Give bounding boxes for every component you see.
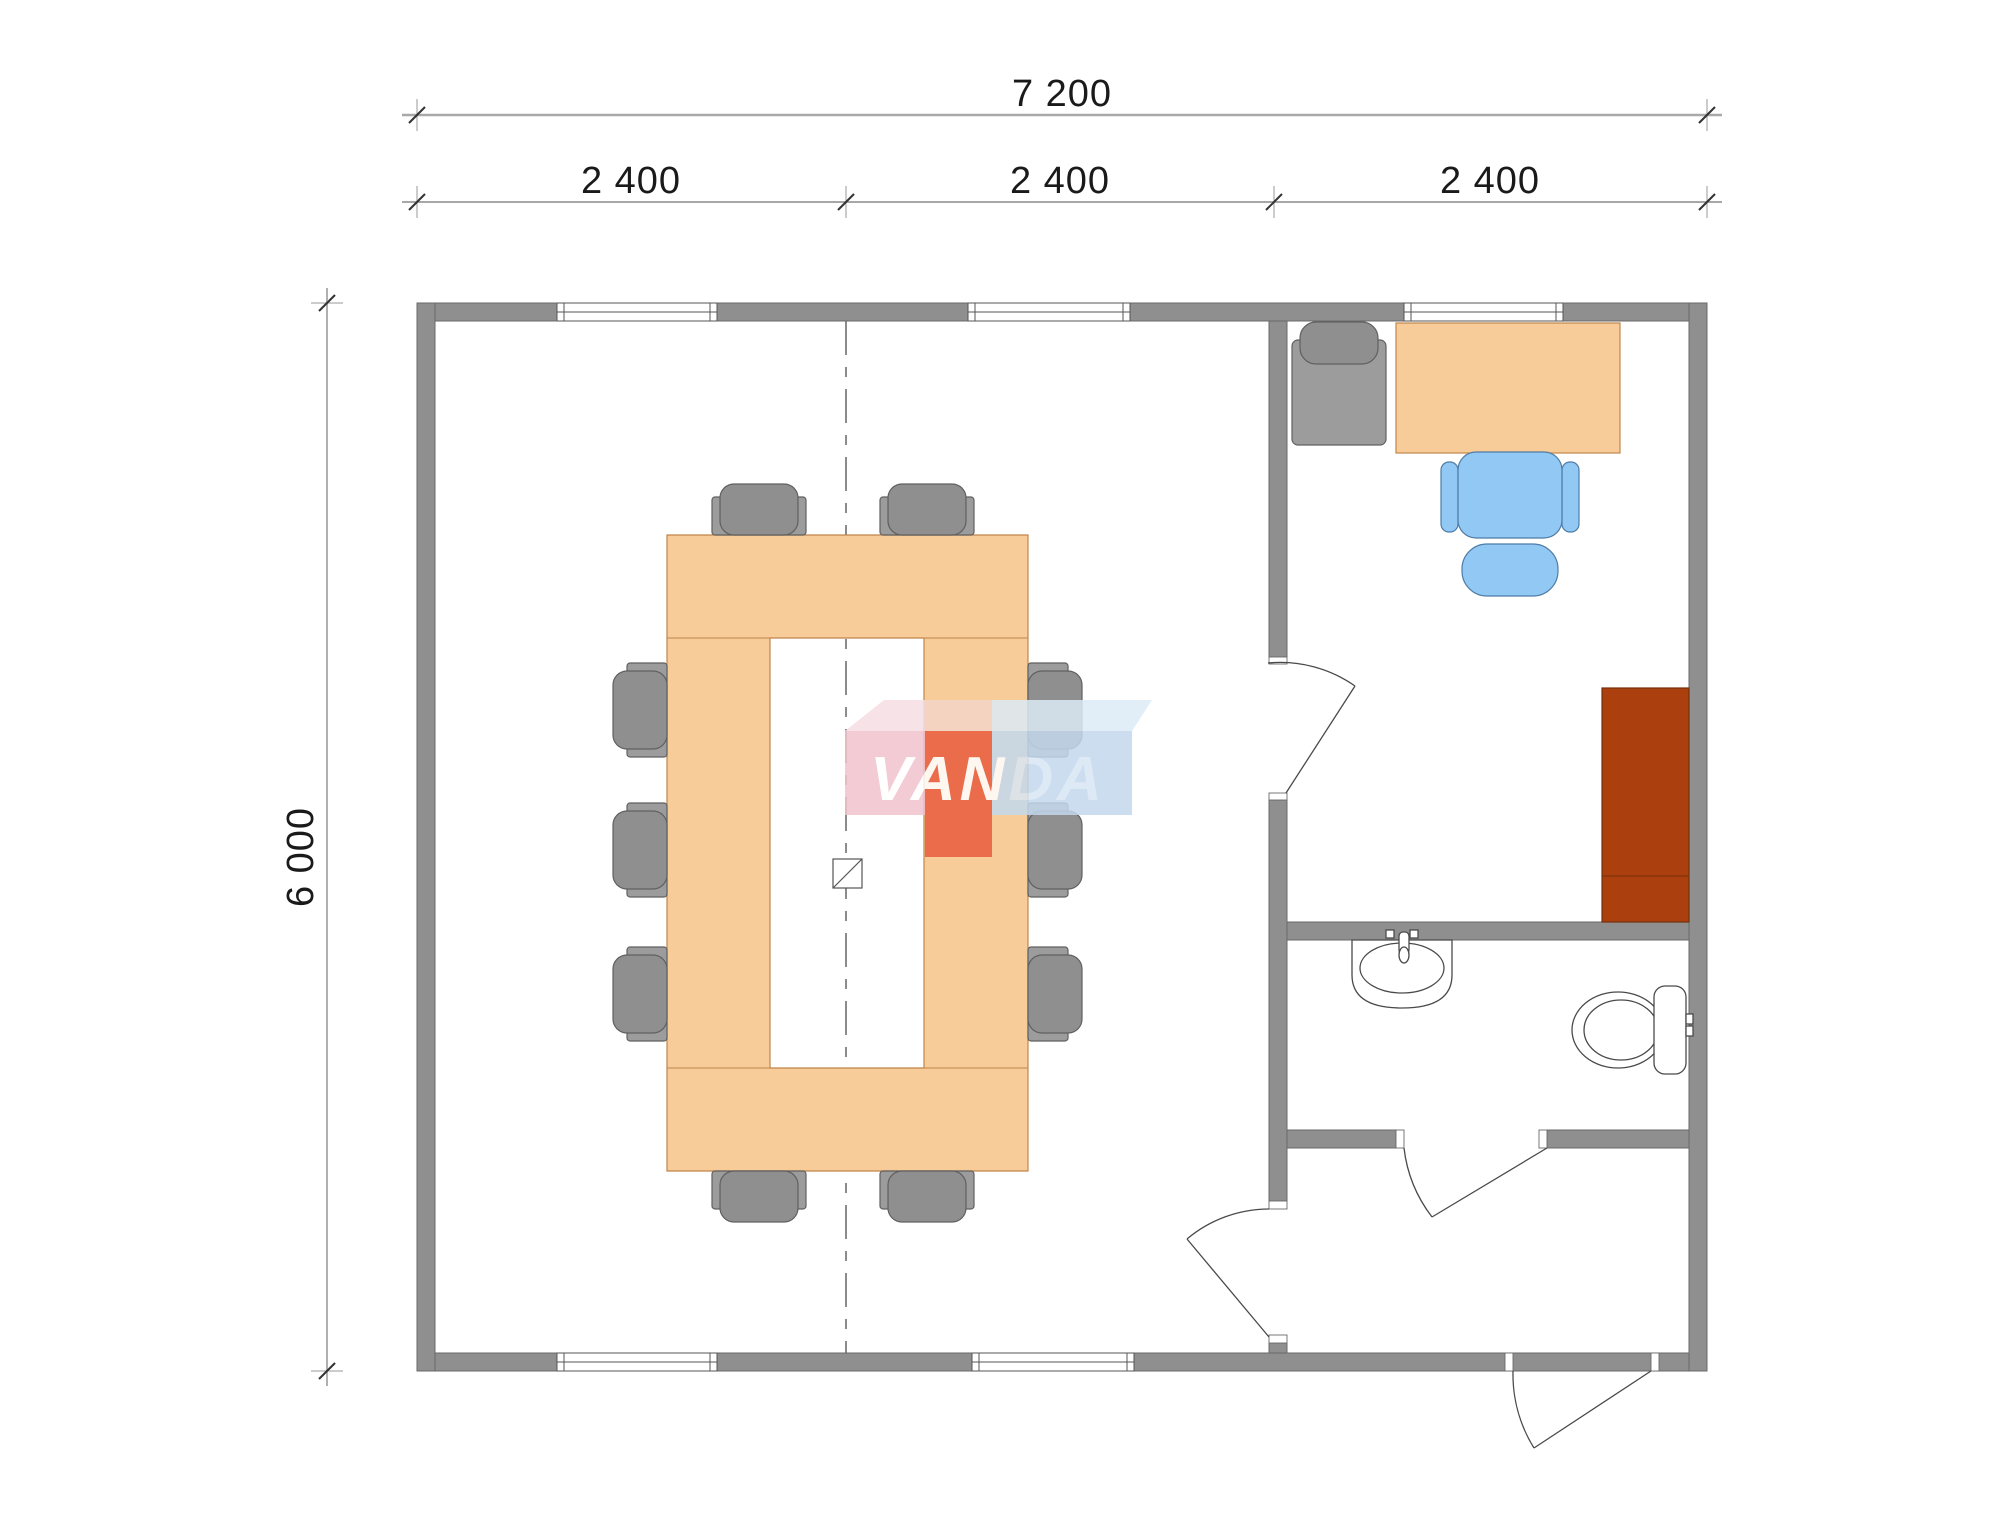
window-top-3 xyxy=(1404,303,1563,321)
watermark-top-face xyxy=(925,700,992,731)
door-bathroom xyxy=(1404,1148,1547,1217)
armrest xyxy=(1562,462,1579,532)
seat xyxy=(1458,452,1562,538)
wall-interior-vertical-upper xyxy=(1269,321,1287,657)
door-hallway xyxy=(1187,1209,1269,1337)
doors xyxy=(1187,662,1651,1448)
wall-office-bathroom xyxy=(1287,922,1689,940)
window-bottom-1 xyxy=(557,1353,717,1371)
floor-plan-canvas: 7 200 2 400 2 400 2 400 6 000 xyxy=(0,0,2000,1516)
dim-label-module-3: 2 400 xyxy=(1440,160,1540,202)
conference-chair xyxy=(712,1171,806,1222)
wall-exterior-left xyxy=(417,303,435,1371)
conference-chair xyxy=(613,947,667,1041)
door-entrance xyxy=(1513,1371,1651,1448)
window-top-2 xyxy=(968,303,1130,321)
wall-exterior-right xyxy=(1689,303,1707,1371)
door-office xyxy=(1268,662,1355,793)
office-cabinet xyxy=(1602,688,1689,922)
conference-chair xyxy=(613,803,667,897)
dim-label-total-width: 7 200 xyxy=(1012,73,1112,115)
conference-chair xyxy=(1028,947,1082,1041)
conference-chair xyxy=(1028,803,1082,897)
dim-label-total-height: 6 000 xyxy=(280,807,322,907)
toilet xyxy=(1572,986,1693,1074)
floor-plan-page: 7 200 2 400 2 400 2 400 6 000 xyxy=(0,0,2000,1516)
office-armchair xyxy=(1292,322,1386,445)
office-furniture xyxy=(1292,322,1689,922)
bathroom-fixtures xyxy=(1352,930,1693,1074)
dim-label-module-2: 2 400 xyxy=(1010,160,1110,202)
wall-bathroom-hall-left xyxy=(1287,1130,1396,1148)
window-bottom-2 xyxy=(972,1353,1134,1371)
conference-chair xyxy=(880,484,974,535)
conference-chair xyxy=(712,484,806,535)
conference-chair xyxy=(880,1171,974,1222)
dim-label-module-1: 2 400 xyxy=(581,160,681,202)
wall-interior-vertical-middle xyxy=(1269,800,1287,1201)
backrest xyxy=(1462,544,1558,596)
conference-chair xyxy=(613,663,667,757)
toilet-tank xyxy=(1654,986,1686,1074)
wall-interior-vertical-stub xyxy=(1269,1343,1287,1353)
window-top-1 xyxy=(557,303,717,321)
toilet-bowl xyxy=(1572,992,1664,1068)
office-desk-chair xyxy=(1441,452,1579,596)
armrest xyxy=(1441,462,1458,532)
flush-button xyxy=(1686,1014,1693,1024)
office-desk xyxy=(1396,323,1620,453)
watermark-text: VANDA xyxy=(870,745,1106,814)
faucet-spout xyxy=(1399,947,1409,963)
flush-button xyxy=(1686,1026,1693,1036)
watermark-top-face xyxy=(845,700,925,731)
sink xyxy=(1352,930,1452,1008)
watermark-top-face xyxy=(992,700,1152,731)
module-centerline xyxy=(833,321,862,1353)
wall-bathroom-hall-right xyxy=(1547,1130,1689,1148)
